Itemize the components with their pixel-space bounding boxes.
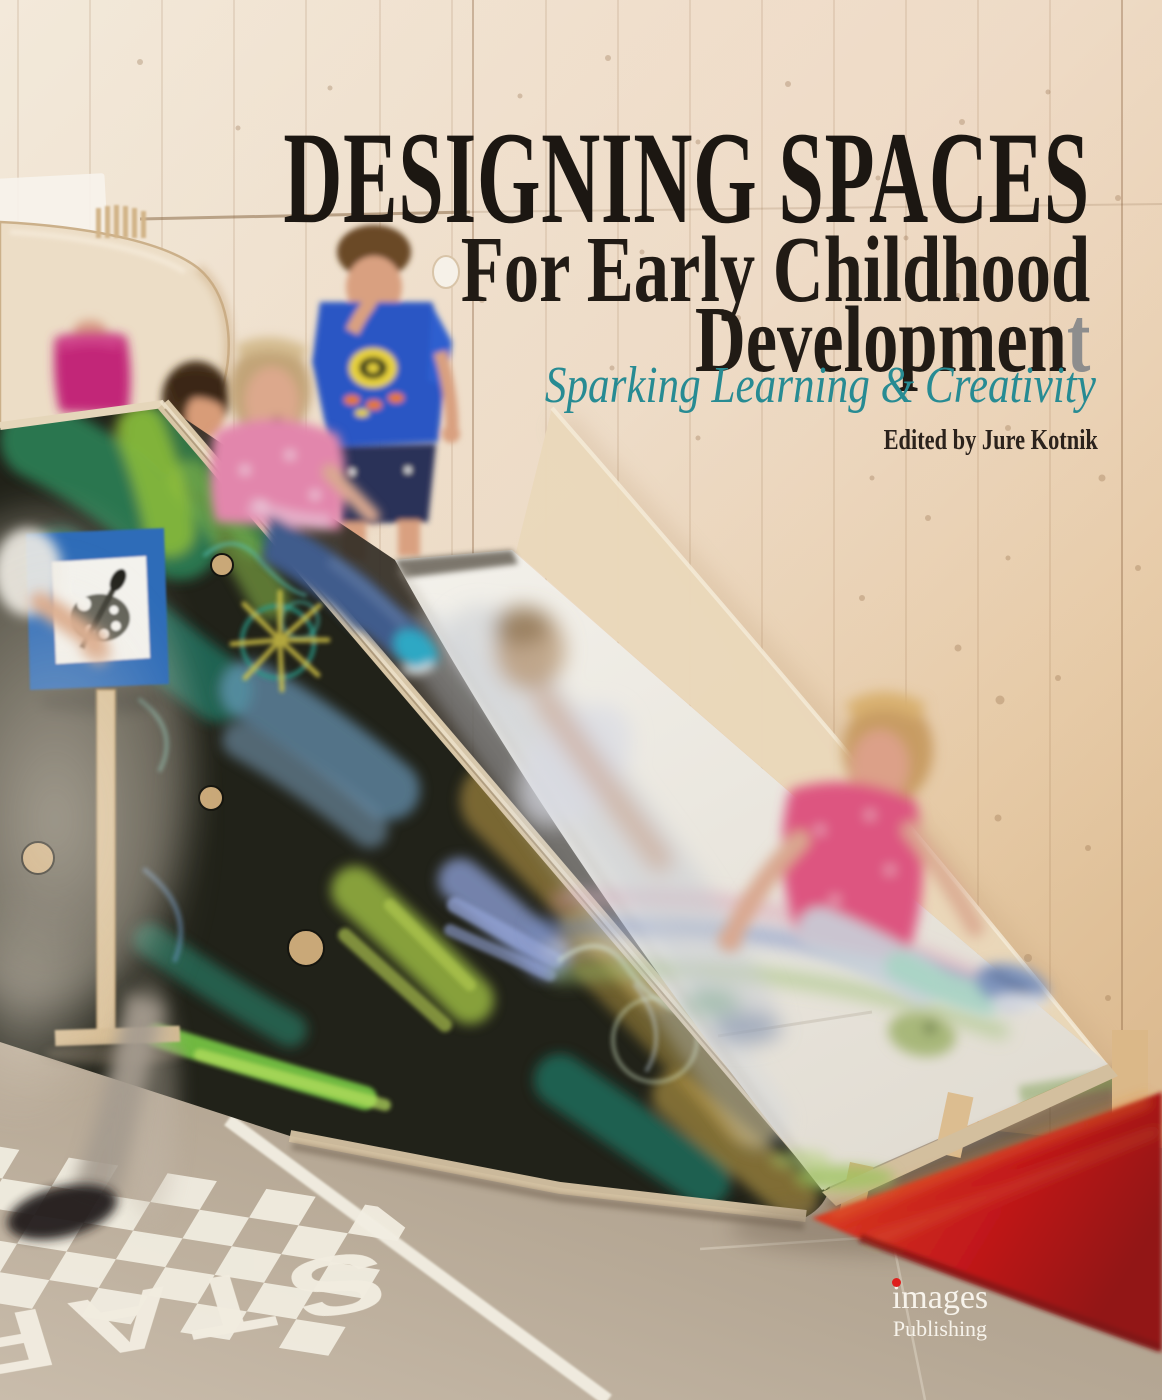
publisher-logo: images Publishing bbox=[882, 1281, 998, 1340]
publisher-division: Publishing bbox=[882, 1318, 998, 1340]
editor-credit: Edited by Jure Kotnik bbox=[884, 427, 1098, 455]
book-cover: DESIGNING SPACES For Early Childhood Dev… bbox=[0, 0, 1162, 1400]
publisher-name: images bbox=[892, 1281, 988, 1315]
book-tagline: Sparking Learning & Creativity bbox=[545, 360, 1096, 412]
red-dot-icon bbox=[892, 1278, 901, 1287]
wall-circle-plug bbox=[433, 256, 459, 288]
